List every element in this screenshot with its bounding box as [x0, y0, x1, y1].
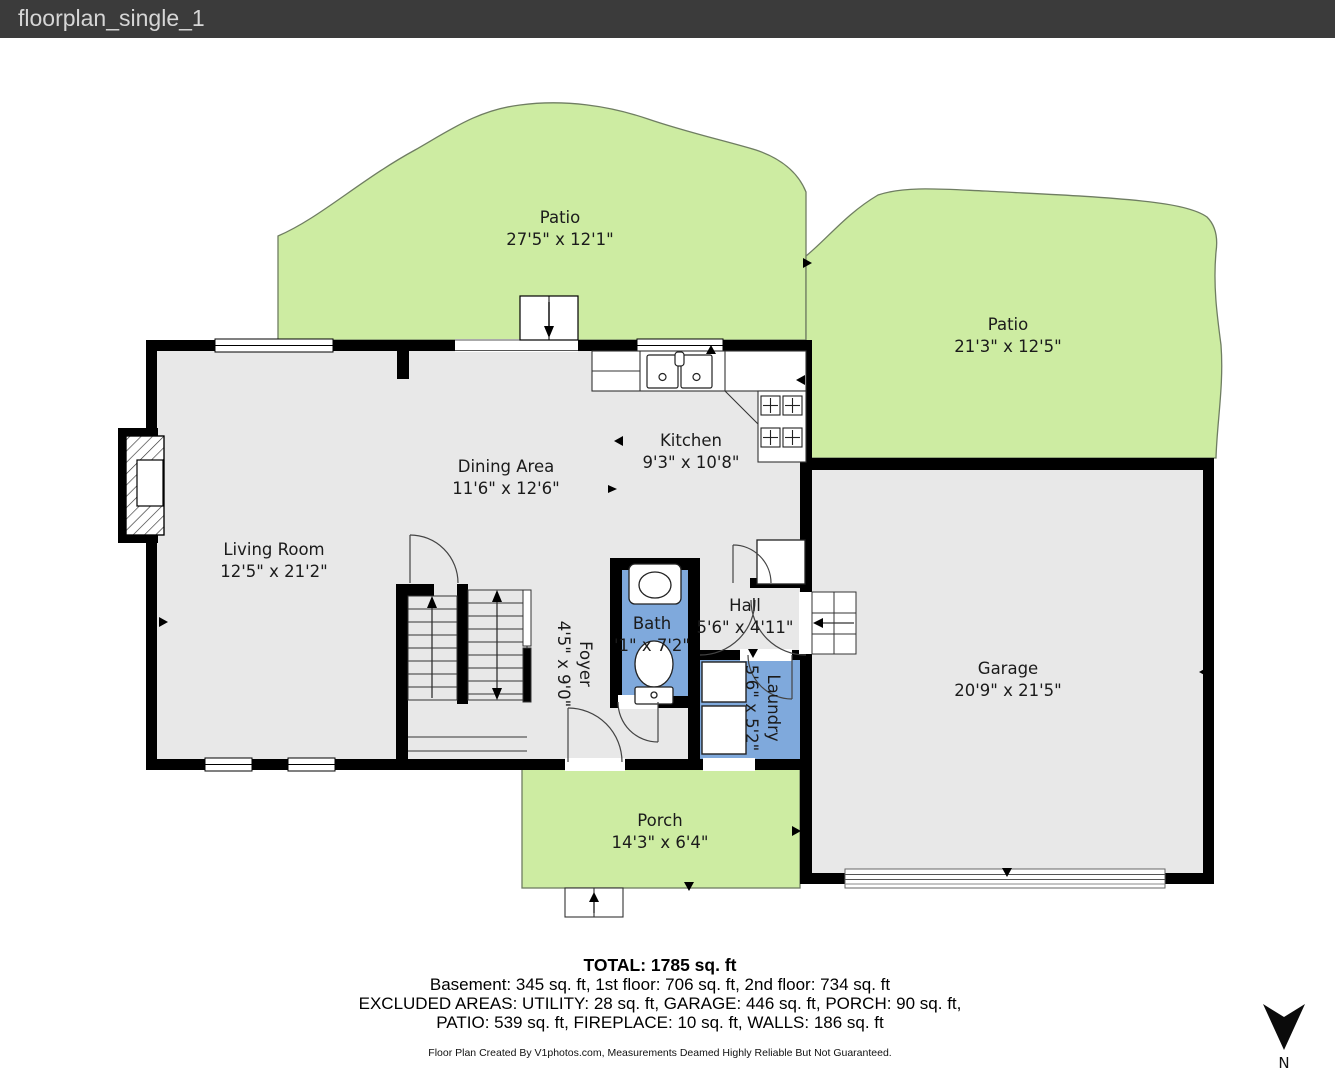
window-icon	[288, 758, 335, 771]
room-label-garage: Garage 20'9" x 21'5"	[954, 658, 1062, 702]
room-label-hall: Hall 5'6" x 4'11"	[697, 595, 794, 639]
room-label-patio-top-left: Patio 27'5" x 12'1"	[506, 207, 614, 251]
north-label: N	[1278, 1054, 1289, 1072]
floor-plan-svg	[0, 0, 1335, 1080]
total-area: TOTAL: 1785 sq. ft	[180, 956, 1140, 975]
room-label-dining: Dining Area 11'6" x 12'6"	[452, 456, 560, 500]
room-label-kitchen: Kitchen 9'3" x 10'8"	[643, 430, 740, 474]
excluded-areas-1: EXCLUDED AREAS: UTILITY: 28 sq. ft, GARA…	[180, 994, 1140, 1013]
area-summary: TOTAL: 1785 sq. ft Basement: 345 sq. ft,…	[180, 956, 1140, 1032]
garage-door-gap	[799, 592, 813, 654]
room-label-laundry: Laundry 5'6" x 5'2"	[740, 665, 784, 752]
room-label-patio-top-right: Patio 21'3" x 12'5"	[954, 314, 1062, 358]
room-label-living: Living Room 12'5" x 21'2"	[220, 539, 328, 583]
window-icon	[205, 758, 252, 771]
room-label-porch: Porch 14'3" x 6'4"	[612, 810, 709, 854]
room-label-bath: Bath '1" x 7'2"	[614, 613, 690, 657]
fireplace-icon	[118, 428, 164, 543]
laundry-door-gap	[703, 758, 755, 771]
room-label-foyer: Foyer 4'5" x 9'0"	[552, 621, 596, 708]
excluded-areas-2: PATIO: 539 sq. ft, FIREPLACE: 10 sq. ft,…	[180, 1013, 1140, 1032]
north-arrow-icon	[1263, 1004, 1305, 1050]
credit-line: Floor Plan Created By V1photos.com, Meas…	[428, 1047, 891, 1059]
floor-areas: Basement: 345 sq. ft, 1st floor: 706 sq.…	[180, 975, 1140, 994]
window-icon	[215, 339, 333, 352]
front-door-gap	[565, 758, 625, 771]
floorplan-page: floorplan_single_1	[0, 0, 1335, 1080]
bath-sink-icon	[629, 564, 681, 604]
